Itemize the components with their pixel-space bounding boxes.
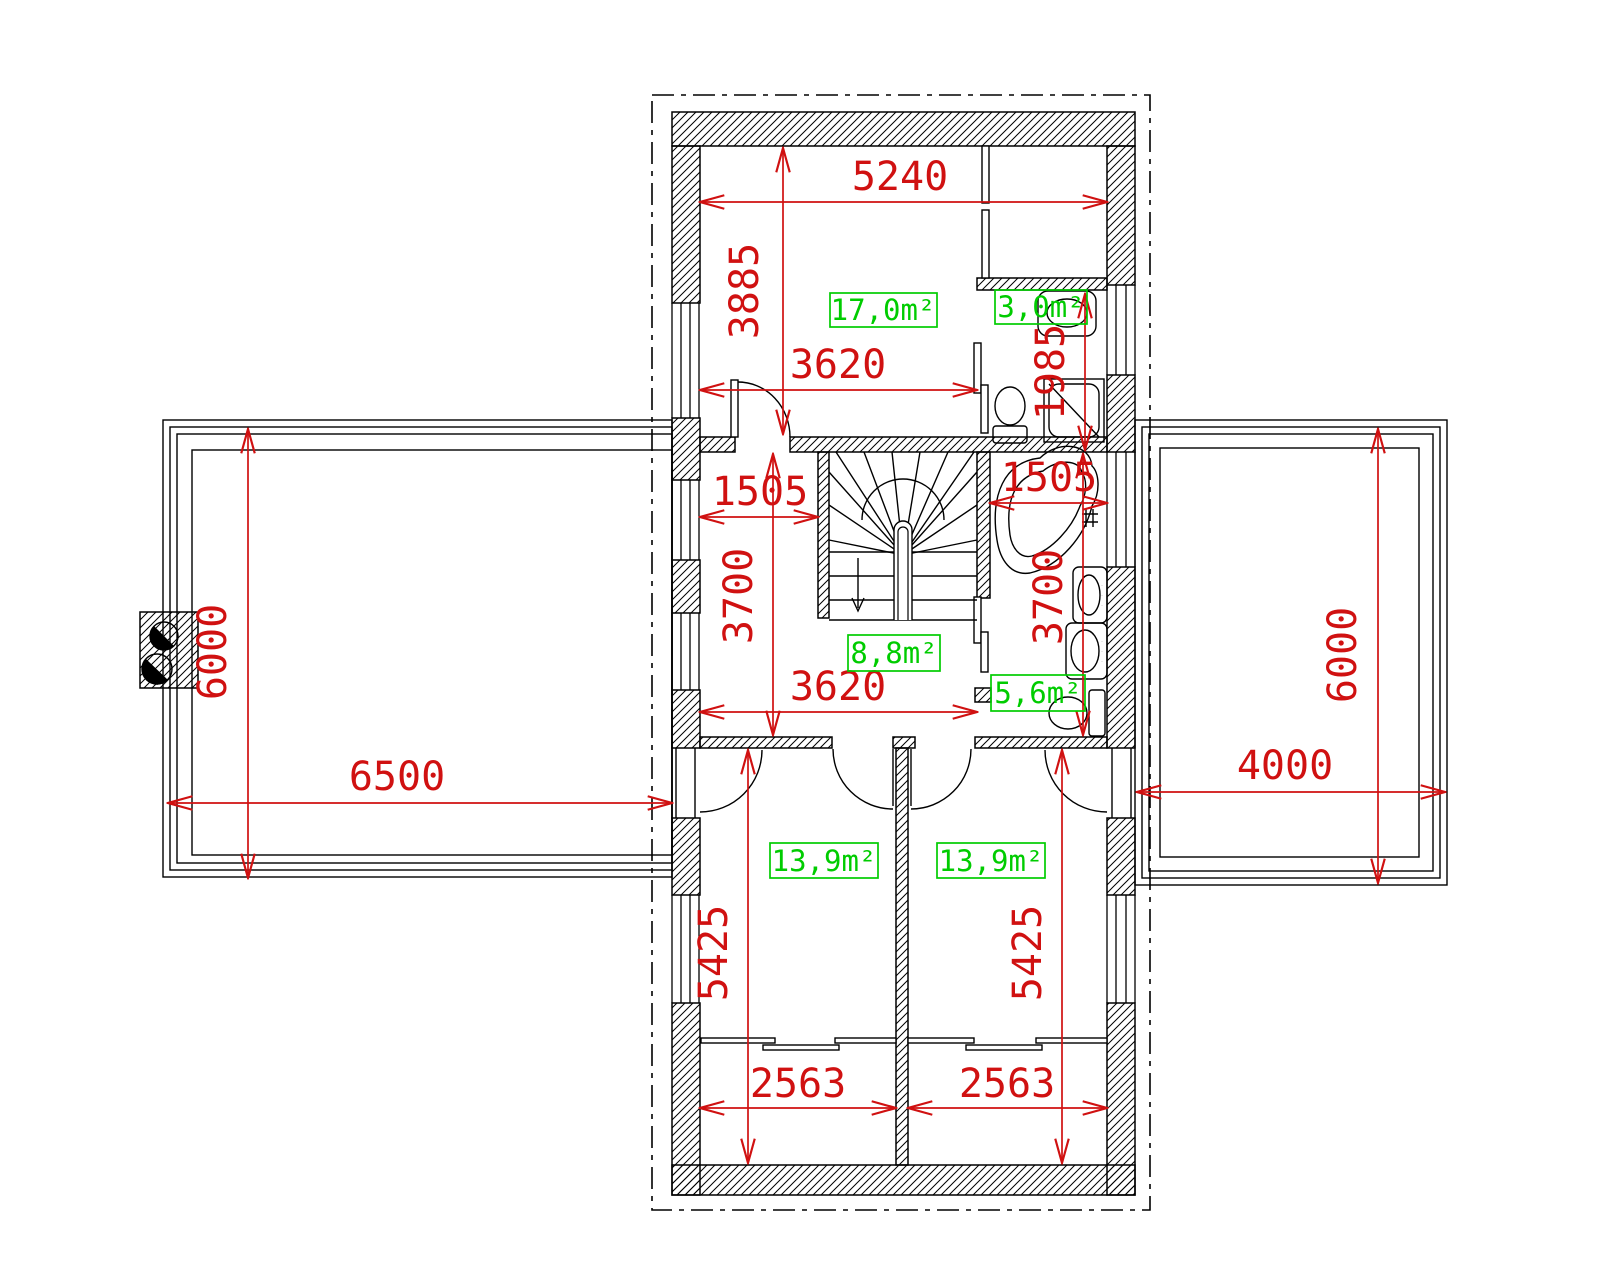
room-label-bedroom-left: 13,9m² bbox=[770, 843, 878, 878]
wall-left-5 bbox=[672, 818, 700, 895]
wall-bedrooms-c bbox=[975, 737, 1107, 748]
room-label-bedroom-top: 17,0m² bbox=[830, 293, 937, 327]
dim-label: 4000 bbox=[1237, 743, 1333, 789]
svg-text:8,8m²: 8,8m² bbox=[850, 636, 937, 670]
dim-bedroom-right-width: 2563 bbox=[908, 1061, 1107, 1108]
door-bedroom-top bbox=[731, 380, 790, 437]
window-bath-main bbox=[1107, 452, 1135, 567]
floor-plan-page: 5240 3885 3620 1505 3700 3620 1505 3700 bbox=[0, 0, 1600, 1280]
toilet-bath-top bbox=[993, 387, 1027, 443]
svg-text:17,0m²: 17,0m² bbox=[831, 293, 936, 327]
window-hall-1 bbox=[672, 480, 699, 560]
bath-main-sliding-door-b bbox=[981, 632, 988, 672]
dim-top-room-width: 5240 bbox=[700, 154, 1107, 202]
terrace-right-rail-inner bbox=[1149, 434, 1433, 871]
dim-label: 5425 bbox=[691, 905, 737, 1001]
wall-right-4 bbox=[1107, 818, 1135, 895]
dim-label: 5240 bbox=[852, 154, 948, 200]
room-label-bathroom-top: 3,0m² bbox=[995, 290, 1087, 324]
dim-label: 6500 bbox=[349, 754, 445, 800]
terrace-right-rail-outer bbox=[1135, 420, 1447, 885]
dim-hall-niche-width: 1505 bbox=[700, 469, 818, 517]
dim-label: 3700 bbox=[716, 548, 762, 644]
dim-label: 3620 bbox=[790, 342, 886, 388]
terrace-right-floor bbox=[1160, 448, 1419, 857]
floor-plan-canvas: 5240 3885 3620 1505 3700 3620 1505 3700 bbox=[0, 0, 1600, 1280]
svg-text:5,6m²: 5,6m² bbox=[994, 676, 1081, 710]
sink-bath-main-1 bbox=[1073, 567, 1107, 623]
dimensions: 5240 3885 3620 1505 3700 3620 1505 3700 bbox=[168, 148, 1445, 1163]
door-bedroom-left bbox=[833, 749, 893, 809]
dim-bath-width: 1505 bbox=[990, 455, 1107, 503]
wall-right-2 bbox=[1107, 375, 1135, 452]
window-bedroom-top bbox=[672, 303, 699, 418]
wall-left-2 bbox=[672, 418, 700, 480]
wall-top bbox=[672, 112, 1135, 146]
stairs bbox=[829, 452, 977, 620]
door-balcony-left bbox=[676, 748, 762, 818]
wall-bedrooms-a bbox=[700, 737, 832, 748]
dim-label: 1505 bbox=[712, 469, 808, 515]
door-bedroom-right bbox=[911, 749, 971, 809]
wall-stair-left bbox=[818, 452, 829, 618]
window-bath-top bbox=[1107, 285, 1135, 375]
dim-label: 6000 bbox=[190, 604, 236, 700]
wall-bedrooms-b bbox=[893, 737, 915, 748]
wall-left-3 bbox=[672, 560, 700, 613]
room-label-hall: 8,8m² bbox=[848, 635, 940, 671]
svg-text:3,0m²: 3,0m² bbox=[997, 290, 1084, 324]
window-bedroom-right bbox=[1107, 895, 1135, 1003]
wall-right-1 bbox=[1107, 146, 1135, 285]
wall-closet-bottom bbox=[977, 278, 1107, 290]
wall-hall-top-a bbox=[700, 437, 735, 452]
closet-partition-a bbox=[982, 146, 989, 203]
dim-left-terrace-width: 6500 bbox=[168, 754, 672, 803]
dim-bedroom-left-width: 2563 bbox=[700, 1061, 896, 1108]
room-label-bathroom-main: 5,6m² bbox=[991, 675, 1085, 711]
svg-text:13,9m²: 13,9m² bbox=[772, 844, 877, 878]
dim-label: 6000 bbox=[1320, 607, 1366, 703]
room-label-bedroom-right: 13,9m² bbox=[937, 843, 1045, 878]
dim-right-terrace-width: 4000 bbox=[1137, 743, 1445, 792]
closet-partition-b bbox=[982, 210, 989, 278]
dim-label: 3700 bbox=[1026, 549, 1072, 645]
wall-bedroom-partition bbox=[896, 748, 908, 1165]
door-balcony-right bbox=[1045, 748, 1131, 818]
dim-label: 5425 bbox=[1005, 905, 1051, 1001]
wall-left-4 bbox=[672, 690, 700, 748]
wall-right-3 bbox=[1107, 567, 1135, 748]
bath-top-sliding-door-b bbox=[981, 385, 988, 433]
wall-bottom bbox=[672, 1165, 1135, 1195]
dim-left-terrace-height: 6000 bbox=[190, 429, 248, 878]
dim-label: 1985 bbox=[1028, 324, 1074, 420]
window-hall-2 bbox=[672, 613, 699, 690]
dim-label: 2563 bbox=[750, 1061, 846, 1107]
terrace-left-rail-outer bbox=[163, 420, 672, 877]
dim-label: 2563 bbox=[959, 1061, 1055, 1107]
bath-top-sliding-door-a bbox=[974, 343, 981, 393]
sink-bath-main-2 bbox=[1066, 623, 1107, 679]
dim-label: 3885 bbox=[722, 243, 768, 339]
wall-stair-right bbox=[977, 452, 990, 598]
wall-hall-top-b bbox=[790, 437, 1107, 452]
wall-left-1 bbox=[672, 146, 700, 303]
wall-bath-jamb bbox=[975, 688, 991, 702]
stair-direction-arrow bbox=[852, 558, 864, 611]
svg-text:13,9m²: 13,9m² bbox=[939, 844, 1044, 878]
terrace-right bbox=[1135, 420, 1447, 885]
dim-right-terrace-height: 6000 bbox=[1320, 429, 1378, 883]
stair-handrail-outer bbox=[894, 521, 912, 620]
terrace-right-rail-mid bbox=[1142, 427, 1440, 878]
